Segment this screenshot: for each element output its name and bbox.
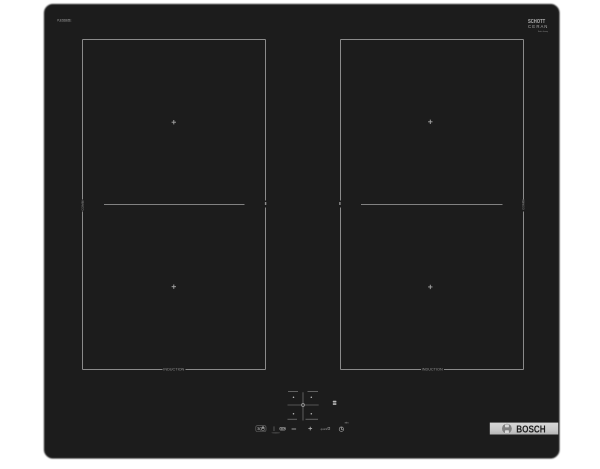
svg-text:INDUCTION: INDUCTION xyxy=(422,367,444,371)
svg-text:BOSCH: BOSCH xyxy=(516,425,546,436)
svg-text:Made in Germany: Made in Germany xyxy=(538,31,548,33)
svg-text:min: min xyxy=(345,422,349,425)
svg-text:quick: quick xyxy=(321,427,328,431)
svg-text:COMBI: COMBI xyxy=(521,199,525,210)
svg-text:C E R A N: C E R A N xyxy=(528,24,547,29)
svg-text:INDUCTION: INDUCTION xyxy=(163,367,185,371)
svg-text:COMBI: COMBI xyxy=(81,200,85,211)
svg-text:PUE611BB5E: PUE611BB5E xyxy=(57,19,72,23)
